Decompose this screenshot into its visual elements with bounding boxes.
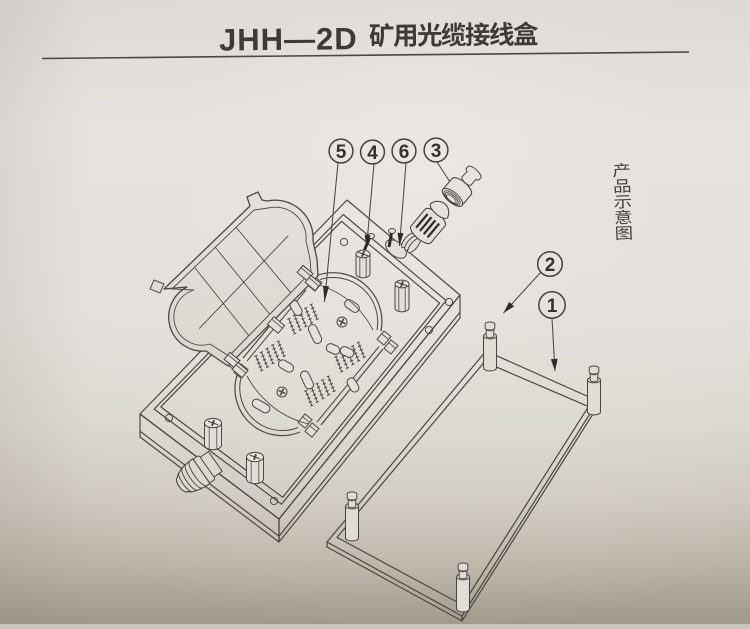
svg-text:4: 4 bbox=[367, 143, 378, 164]
svg-text:2: 2 bbox=[545, 255, 556, 276]
svg-text:3: 3 bbox=[431, 141, 442, 162]
svg-text:5: 5 bbox=[336, 142, 347, 163]
svg-text:1: 1 bbox=[547, 296, 558, 317]
svg-text:JHH—2D: JHH—2D bbox=[219, 21, 358, 57]
svg-text:6: 6 bbox=[399, 142, 410, 163]
